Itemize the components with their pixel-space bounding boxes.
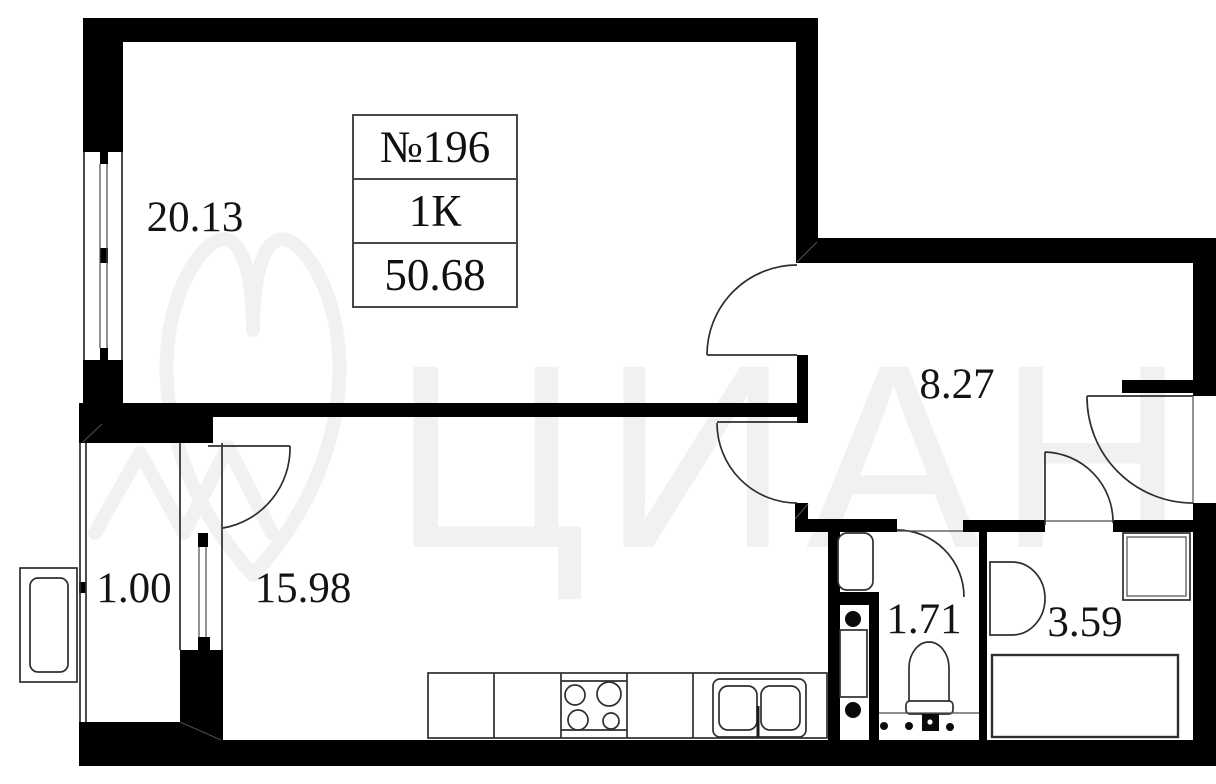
apartment-number: №196 — [354, 116, 516, 180]
kitchen-door — [717, 422, 797, 503]
toilet — [906, 642, 953, 714]
area-label-hallway: 8.27 — [867, 363, 1047, 406]
living-room-door — [707, 265, 797, 355]
wall-entrance-stub — [1122, 380, 1195, 393]
platform-dot — [905, 722, 913, 730]
burner — [568, 710, 588, 730]
shower-box — [1123, 533, 1190, 600]
apartment-total-area: 50.68 — [354, 244, 516, 306]
bathtub — [992, 655, 1178, 737]
wc-door — [897, 530, 964, 597]
window-tick — [198, 533, 208, 547]
apartment-room-type: 1К — [354, 180, 516, 244]
wall-right-upper — [1193, 238, 1216, 396]
riser-dot — [845, 702, 861, 718]
window-tick — [198, 637, 210, 651]
kitchen-sink — [713, 679, 806, 737]
wall-wc-top-a — [795, 519, 897, 532]
bathroom-door — [1045, 452, 1113, 525]
toilet-bowl — [909, 642, 949, 703]
wall-hallway-top — [818, 238, 1195, 263]
wall-left-upper — [83, 18, 123, 152]
area-label-balcony: 1.00 — [44, 567, 224, 610]
wall-right-lower — [1193, 503, 1216, 766]
area-label-bathroom: 3.59 — [995, 601, 1175, 644]
wall-wc-top-b — [963, 520, 1045, 532]
wall-hall-kitchen — [797, 355, 808, 423]
platform-dot — [880, 722, 888, 730]
window-tick — [100, 152, 108, 164]
wc-platform — [879, 713, 979, 731]
wall-balcony-kitchen — [180, 650, 223, 742]
sink-bowl-right — [761, 686, 800, 730]
burner — [565, 685, 585, 705]
area-label-kitchen-living: 15.98 — [213, 567, 393, 610]
burner — [603, 713, 619, 729]
vent-shaft — [838, 533, 873, 590]
area-label-wc: 1.71 — [834, 598, 1014, 641]
sink-bowl-left — [719, 686, 757, 730]
wall-top — [83, 18, 818, 42]
apartment-info-table: №196 1К 50.68 — [352, 114, 518, 308]
drain-dot — [927, 719, 932, 724]
vent-box — [838, 533, 873, 590]
balcony-door — [208, 446, 290, 528]
toilet-tank — [906, 701, 953, 714]
wall-bathroom-top — [1113, 520, 1198, 532]
window-tick — [100, 348, 108, 360]
platform-dot — [946, 723, 954, 731]
wall-livingroom-right — [796, 18, 818, 263]
area-label-living-room: 20.13 — [105, 196, 285, 239]
floor-plan: ЦИАН — [0, 0, 1216, 784]
wall-bottom — [79, 740, 1216, 766]
shower-outer — [1123, 533, 1190, 600]
bathtub-rect — [992, 655, 1178, 737]
wall-divider — [83, 403, 797, 417]
burner — [597, 682, 621, 706]
